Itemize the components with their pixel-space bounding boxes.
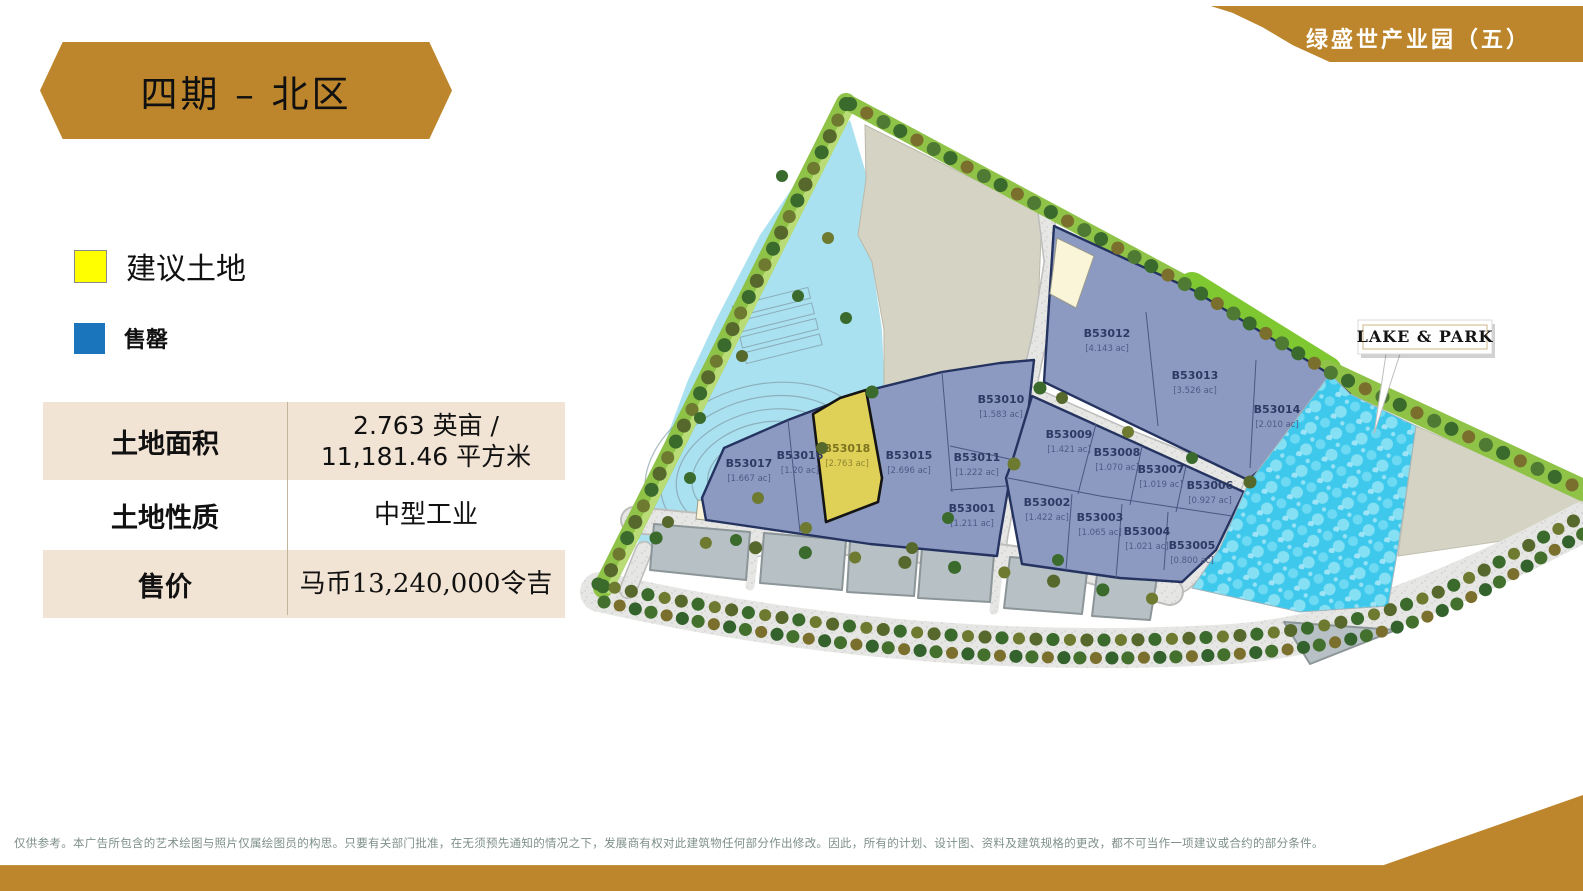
svg-text:B53016: B53016	[777, 449, 824, 462]
svg-text:B53018: B53018	[824, 442, 871, 455]
sold-swatch	[74, 323, 105, 354]
lake-park-label: LAKE & PARK	[1357, 327, 1494, 346]
svg-text:[2.696 ac]: [2.696 ac]	[887, 466, 931, 476]
svg-text:B53001: B53001	[949, 502, 996, 515]
svg-text:[1.667 ac]: [1.667 ac]	[727, 474, 771, 484]
svg-text:B53014: B53014	[1254, 403, 1301, 416]
svg-text:[1.222 ac]: [1.222 ac]	[955, 468, 999, 478]
svg-text:B53008: B53008	[1094, 446, 1141, 459]
svg-text:[1.583 ac]: [1.583 ac]	[979, 410, 1023, 420]
land-info-table: 土地面积 2.763 英亩 / 11,181.46 平方米 土地性质 中型工业 …	[43, 402, 565, 621]
svg-text:[1.065 ac]: [1.065 ac]	[1078, 528, 1122, 538]
svg-text:[1.070 ac]: [1.070 ac]	[1095, 463, 1139, 473]
svg-text:[1.422 ac]: [1.422 ac]	[1025, 513, 1069, 523]
row-label: 土地性质	[43, 483, 287, 547]
phase-title-banner: 四期 – 北区	[40, 42, 452, 139]
table-row: 土地性质 中型工业	[43, 483, 565, 547]
sold-label: 售罄	[124, 322, 168, 354]
svg-text:B53017: B53017	[726, 457, 773, 470]
proposed-swatch	[74, 250, 107, 283]
svg-text:[1.021 ac]: [1.021 ac]	[1125, 542, 1169, 552]
svg-text:[0.800 ac]: [0.800 ac]	[1170, 556, 1214, 566]
svg-text:B53004: B53004	[1124, 525, 1171, 538]
svg-text:B53015: B53015	[886, 449, 933, 462]
svg-text:B53011: B53011	[954, 451, 1001, 464]
row-label: 售价	[43, 550, 287, 618]
legend-proposed: 建议土地	[74, 244, 246, 288]
row-value: 2.763 英亩 / 11,181.46 平方米	[287, 402, 565, 480]
svg-text:[1.211 ac]: [1.211 ac]	[950, 519, 994, 529]
row-label: 土地面积	[43, 402, 287, 480]
svg-text:B53006: B53006	[1187, 479, 1234, 492]
svg-text:[1.421 ac]: [1.421 ac]	[1047, 445, 1091, 455]
svg-text:[0.927 ac]: [0.927 ac]	[1188, 496, 1232, 506]
svg-text:B53010: B53010	[978, 393, 1025, 406]
legend: 建议土地 售罄	[74, 244, 246, 388]
legend-sold: 售罄	[74, 322, 246, 354]
table-row: 售价 马币13,240,000令吉	[43, 550, 565, 618]
svg-text:B53007: B53007	[1138, 463, 1185, 476]
table-column-divider	[287, 402, 288, 615]
phase-title-label: 四期 – 北区	[140, 64, 351, 118]
svg-text:[4.143 ac]: [4.143 ac]	[1085, 344, 1129, 354]
row-value: 中型工业	[287, 483, 565, 547]
svg-text:[2.010 ac]: [2.010 ac]	[1255, 420, 1299, 430]
page: { "page": { "ribbon_label": "绿盛世产业园（五）",…	[0, 0, 1583, 891]
svg-text:[1.20 ac]: [1.20 ac]	[781, 466, 819, 476]
svg-text:B53005: B53005	[1169, 539, 1216, 552]
disclaimer-text: 仅供参考。本广告所包含的艺术绘图与照片仅属绘图员的构思。只要有关部门批准，在无须…	[14, 835, 1514, 851]
proposed-label: 建议土地	[126, 244, 246, 288]
svg-text:[2.763 ac]: [2.763 ac]	[825, 459, 869, 469]
svg-text:B53003: B53003	[1077, 511, 1124, 524]
svg-text:B53009: B53009	[1046, 428, 1093, 441]
svg-text:B53012: B53012	[1084, 327, 1131, 340]
svg-text:B53002: B53002	[1024, 496, 1071, 509]
svg-text:B53013: B53013	[1172, 369, 1219, 382]
svg-text:[1.019 ac]: [1.019 ac]	[1139, 480, 1183, 490]
table-row: 土地面积 2.763 英亩 / 11,181.46 平方米	[43, 402, 565, 480]
project-ribbon-label: 绿盛世产业园（五）	[1306, 22, 1531, 54]
svg-text:[3.526 ac]: [3.526 ac]	[1173, 386, 1217, 396]
row-value: 马币13,240,000令吉	[287, 550, 565, 618]
